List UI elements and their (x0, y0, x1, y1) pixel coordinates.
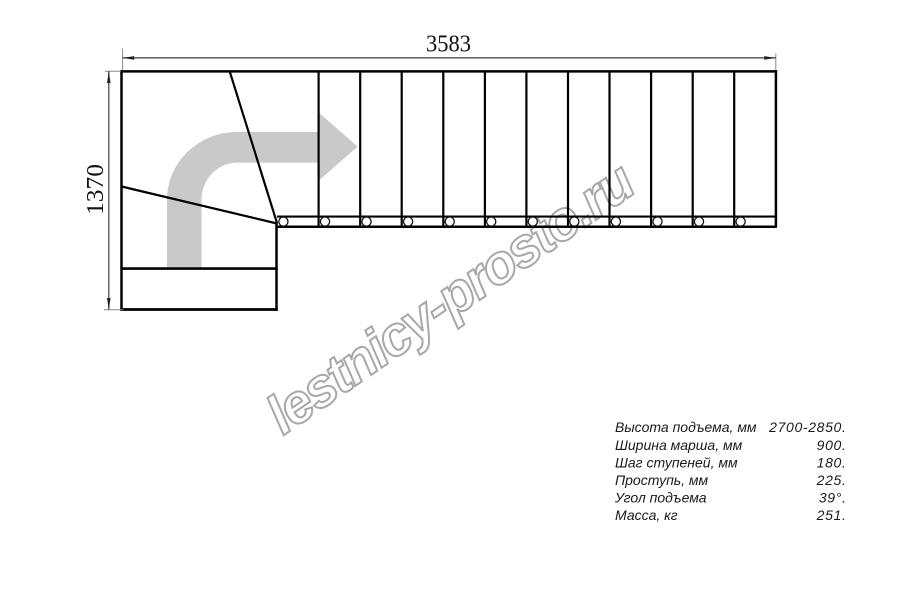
svg-text:225.: 225. (816, 472, 847, 488)
svg-text:Угол подъема: Угол подъема (614, 490, 707, 506)
svg-text:251.: 251. (816, 507, 847, 523)
svg-text:39°.: 39°. (819, 490, 847, 506)
svg-text:3583: 3583 (426, 31, 471, 57)
svg-text:Проступь, мм: Проступь, мм (615, 472, 709, 488)
svg-text:2700-2850.: 2700-2850. (768, 419, 846, 435)
svg-text:Масса, кг: Масса, кг (615, 507, 678, 523)
svg-text:Высота подъема, мм: Высота подъема, мм (615, 419, 757, 435)
svg-text:900.: 900. (817, 437, 847, 453)
svg-text:Шаг ступеней, мм: Шаг ступеней, мм (615, 454, 738, 470)
svg-text:Ширина марша, мм: Ширина марша, мм (615, 437, 743, 453)
svg-text:180.: 180. (817, 454, 847, 470)
svg-text:1370: 1370 (83, 164, 109, 215)
